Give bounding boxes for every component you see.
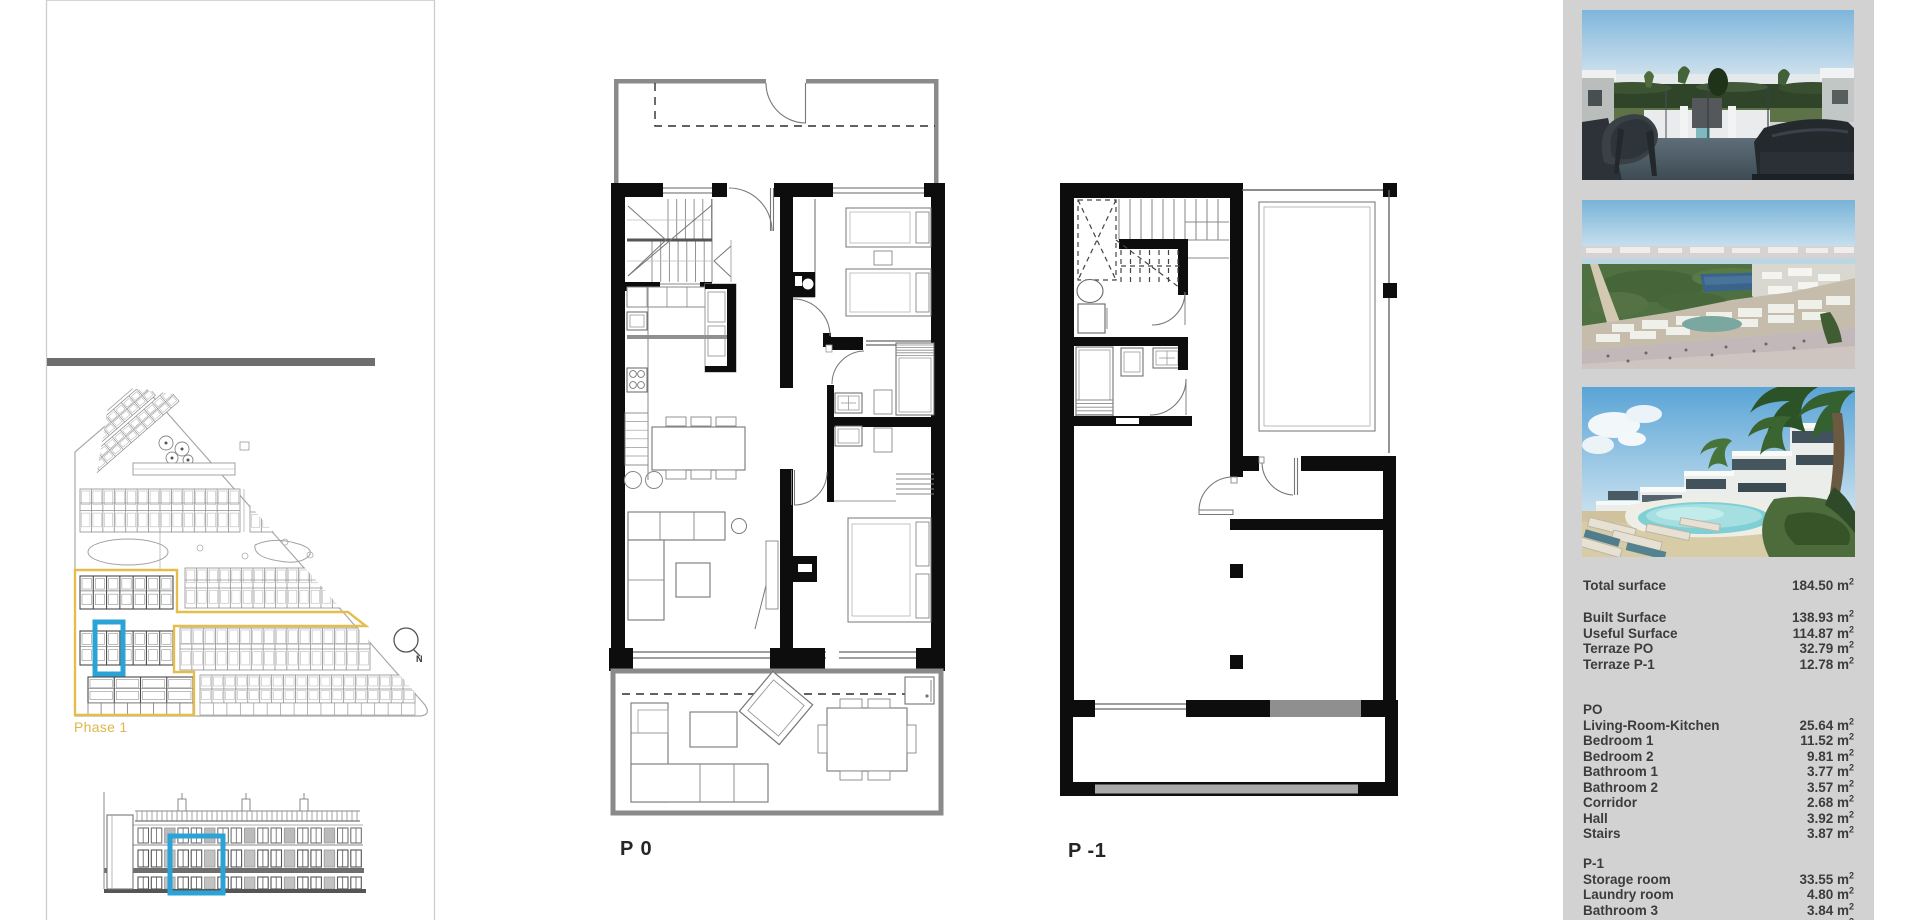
svg-text:N: N (416, 654, 423, 664)
svg-text:Phase 1: Phase 1 (74, 719, 127, 735)
svg-text:P 0: P 0 (620, 838, 653, 860)
svg-text:P -1: P -1 (1068, 840, 1106, 862)
